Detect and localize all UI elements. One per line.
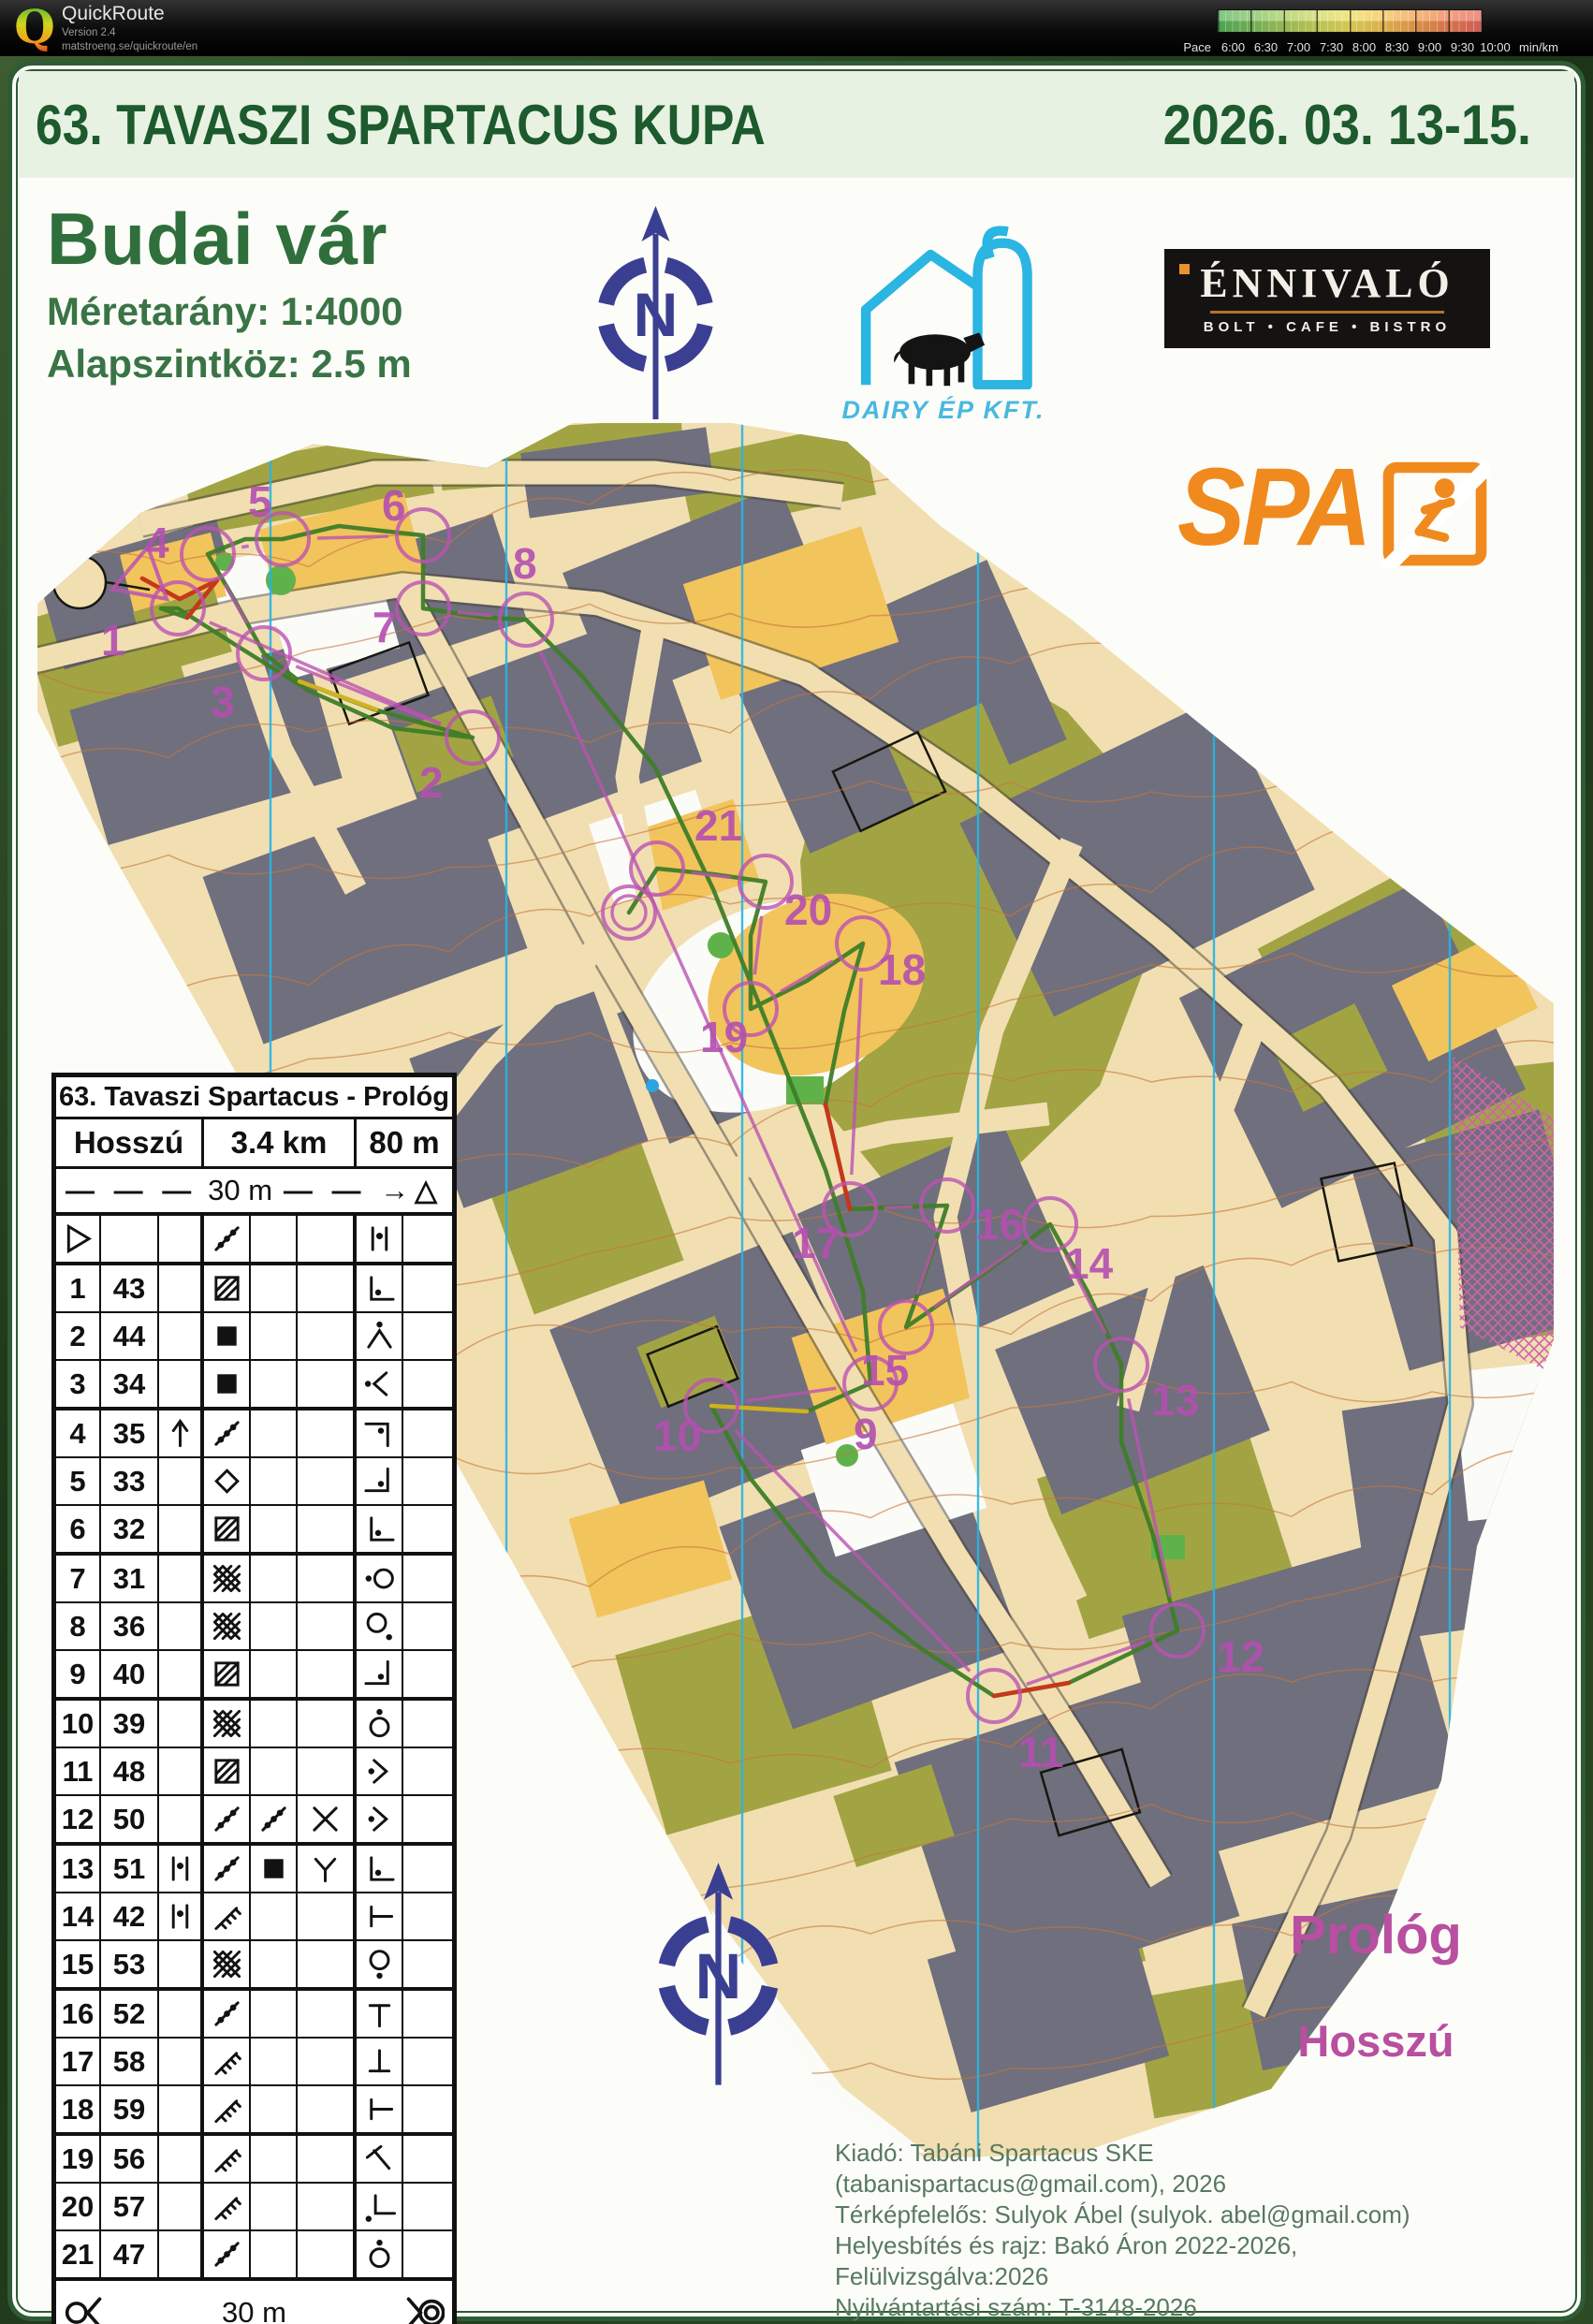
col-dimensions (298, 2039, 357, 2084)
col-appearance (251, 1991, 298, 2037)
col-code: 33 (101, 1458, 159, 1504)
col-feature (204, 1361, 251, 1407)
col-dimensions (298, 2136, 357, 2182)
app-name: QuickRoute (62, 3, 165, 25)
col-code: 48 (101, 1748, 159, 1794)
col-location (357, 1313, 403, 1359)
col-location (357, 2136, 403, 2182)
dot-circle-symbol (363, 1562, 396, 1595)
cross-symbol (309, 1803, 342, 1835)
stairway-symbol (211, 2190, 243, 2223)
pace-tick: 7:00 (1282, 40, 1315, 54)
col-which (159, 1796, 204, 1842)
col-other (403, 1941, 452, 1987)
finish-row: 30 m (56, 2281, 452, 2324)
between-symbol (164, 1852, 197, 1885)
start-route-distance: 30 m (208, 1174, 272, 1207)
col-which (159, 1701, 204, 1747)
map-info-block: Budai vár Méretarány: 1:4000 Alapszintkö… (47, 197, 412, 387)
col-dimensions (298, 1506, 357, 1552)
col-other (403, 1846, 452, 1892)
col-appearance (251, 1893, 298, 1939)
col-number: 13 (56, 1846, 101, 1892)
canopy-symbol (211, 1562, 243, 1595)
col-feature (204, 2231, 251, 2277)
paved-symbol (211, 1658, 243, 1690)
svg-text:N: N (695, 1940, 742, 2012)
quickroute-titlebar: Q QuickRoute Version 2.4 matstroeng.se/q… (0, 0, 1593, 56)
wall-symbol (211, 2238, 243, 2271)
ennivalo-rule (1210, 311, 1444, 314)
card-marked-route: — — — 30 m — — →△ (56, 1169, 452, 1216)
col-feature (204, 1506, 251, 1552)
control-row: 5 33 (56, 1458, 452, 1506)
svg-text:Q: Q (14, 4, 55, 54)
canopy-symbol (211, 1610, 243, 1643)
col-which (159, 2231, 204, 2277)
col-location (357, 1701, 403, 1747)
col-code: 36 (101, 1603, 159, 1649)
col-feature (204, 1410, 251, 1456)
col-which (159, 1265, 204, 1311)
card-course-info: Hosszú 3.4 km 80 m (56, 1119, 452, 1169)
col-code: 35 (101, 1410, 159, 1456)
finish-route-distance: 30 m (222, 2296, 286, 2324)
col-code: 52 (101, 1991, 159, 2037)
col-which (159, 1846, 204, 1892)
col-other (403, 1991, 452, 2037)
col-dimensions (298, 2086, 357, 2132)
course-banner: Prológ Hosszú (1245, 1904, 1507, 2067)
col-number: 2 (56, 1313, 101, 1359)
col-location (357, 2184, 403, 2229)
col-feature (204, 1313, 251, 1359)
control-row: 7 31 (56, 1556, 452, 1603)
col-number: 9 (56, 1651, 101, 1697)
control-row: 20 57 (56, 2184, 452, 2231)
col-appearance (251, 1556, 298, 1601)
col-other (403, 1701, 452, 1747)
map-scale: Méretarány: 1:4000 (47, 289, 412, 334)
col-dimensions (298, 1410, 357, 1456)
col-code: 34 (101, 1361, 159, 1407)
col-other (403, 1893, 452, 1939)
junction-y-symbol (309, 1852, 342, 1885)
pace-tick: 6:00 (1217, 40, 1250, 54)
col-appearance (251, 1216, 298, 1262)
app-version: Version 2.4 (62, 27, 116, 38)
between-symbol (164, 1900, 197, 1933)
control-row: 3 34 (56, 1361, 452, 1410)
col-feature (204, 1458, 251, 1504)
pace-labels: Pace6:006:307:007:308:008:309:009:3010:0… (1147, 40, 1566, 54)
col-dimensions (298, 1846, 357, 1892)
col-number: 19 (56, 2136, 101, 2182)
col-which (159, 2086, 204, 2132)
col-code: 51 (101, 1846, 159, 1892)
col-which (159, 1941, 204, 1987)
chevron-e-dot-symbol (363, 1755, 396, 1788)
col-feature (204, 1846, 251, 1892)
corner-sw-dot-symbol (363, 1852, 396, 1885)
col-appearance (251, 1846, 298, 1892)
wall-symbol (211, 1222, 243, 1255)
map-contour-interval: Alapszintköz: 2.5 m (47, 342, 412, 387)
credit-line: Kiadó: Tabáni Spartacus SKE (tabanispart… (835, 2138, 1490, 2200)
apex-n-dot-symbol (363, 1320, 396, 1352)
pace-tick: 10:00 (1479, 40, 1512, 54)
col-which (159, 2039, 204, 2084)
col-location (357, 1556, 403, 1601)
stairway-symbol (211, 2142, 243, 2175)
control-row: 9 40 (56, 1651, 452, 1701)
col-which (159, 1506, 204, 1552)
credit-line: Helyesbítés és rajz: Bakó Áron 2022-2026… (835, 2230, 1490, 2292)
col-code: 40 (101, 1651, 159, 1697)
pace-tick: 6:30 (1250, 40, 1282, 54)
pace-tick: 9:30 (1446, 40, 1479, 54)
diag-tick-symbol (363, 2142, 396, 2175)
pace-tick: 7:30 (1315, 40, 1348, 54)
col-code: 58 (101, 2039, 159, 2084)
control-row: 11 48 (56, 1748, 452, 1796)
map-title: Budai vár (47, 197, 412, 282)
between-symbol (363, 1222, 396, 1255)
course-name: Prológ (1245, 1904, 1507, 1966)
col-code: 43 (101, 1265, 159, 1311)
north-arrow-icon-bottom: N (646, 1859, 791, 2093)
pace-tick: 8:30 (1381, 40, 1413, 54)
col-which (159, 2136, 204, 2182)
col-appearance (251, 2086, 298, 2132)
col-number: 1 (56, 1265, 101, 1311)
col-dimensions (298, 1701, 357, 1747)
corner-ne-dot-symbol (363, 1417, 396, 1450)
corner-se-dot-symbol (363, 1658, 396, 1690)
wall-symbol (257, 1803, 290, 1835)
col-appearance (251, 2039, 298, 2084)
col-location (357, 2231, 403, 2277)
circle-dot-se-symbol (363, 1610, 396, 1643)
col-location (357, 1506, 403, 1552)
svg-text:N: N (634, 280, 679, 349)
dairy-logo: DAIRY ÉP KFT. (836, 221, 1051, 425)
col-appearance (251, 1603, 298, 1649)
col-number: 8 (56, 1603, 101, 1649)
col-feature (204, 1991, 251, 2037)
col-which (159, 1556, 204, 1601)
col-feature (204, 1216, 251, 1262)
control-row: 18 59 (56, 2086, 452, 2136)
col-appearance (251, 2231, 298, 2277)
col-location (357, 1603, 403, 1649)
col-dimensions (298, 1458, 357, 1504)
control-row: 8 36 (56, 1603, 452, 1651)
control-row: 13 51 (56, 1846, 452, 1893)
col-code: 56 (101, 2136, 159, 2182)
dairy-barn-icon (843, 221, 1045, 389)
wall-symbol (211, 1803, 243, 1835)
control-row: 6 32 (56, 1506, 452, 1556)
canopy-symbol (211, 1948, 243, 1981)
wall-symbol (211, 1417, 243, 1450)
ennivalo-accent-square (1179, 264, 1190, 274)
col-other (403, 1603, 452, 1649)
credit-line: Nyilvántartási szám: T-3148-2026 (835, 2292, 1490, 2323)
col-feature (204, 2086, 251, 2132)
col-other (403, 1361, 452, 1407)
col-other (403, 1651, 452, 1697)
event-banner: 63. TAVASZI SPARTACUS KUPA 2026. 03. 13-… (19, 71, 1574, 178)
col-appearance (251, 1701, 298, 1747)
col-appearance (251, 2184, 298, 2229)
control-row: 12 50 (56, 1796, 452, 1846)
circle-dot-s-symbol (363, 1948, 396, 1981)
col-feature (204, 1701, 251, 1747)
control-row: 4 35 (56, 1410, 452, 1458)
wall-symbol (211, 1852, 243, 1885)
col-feature (204, 2136, 251, 2182)
col-number: 6 (56, 1506, 101, 1552)
corner-se-dot-symbol (363, 1465, 396, 1498)
quickroute-logo-icon: Q (13, 4, 56, 59)
control-row: 14 42 (56, 1893, 452, 1941)
screenshot-root: Q QuickRoute Version 2.4 matstroeng.se/q… (0, 0, 1593, 2324)
col-other (403, 2231, 452, 2277)
paved-symbol (211, 1272, 243, 1305)
credits: Kiadó: Tabáni Spartacus SKE (tabanispart… (835, 2138, 1490, 2324)
control-row: 17 58 (56, 2039, 452, 2086)
ennivalo-name: ÉNNIVALÓ (1200, 263, 1454, 304)
col-code: 53 (101, 1941, 159, 1987)
col-other (403, 1556, 452, 1601)
col-dimensions (298, 2184, 357, 2229)
col-other (403, 2086, 452, 2132)
col-dimensions (298, 1748, 357, 1794)
col-appearance (251, 1796, 298, 1842)
col-feature (204, 2039, 251, 2084)
control-row: 2 44 (56, 1313, 452, 1361)
col-feature (204, 2184, 251, 2229)
circle-chevron-symbol (64, 2292, 105, 2324)
col-feature (204, 1265, 251, 1311)
course-category: Hosszú (1245, 2015, 1507, 2067)
col-other (403, 2184, 452, 2229)
t-w-symbol (363, 1900, 396, 1933)
col-number: 7 (56, 1556, 101, 1601)
event-date: 2026. 03. 13-15. (1163, 93, 1531, 157)
col-which (159, 1893, 204, 1939)
paved-symbol (211, 1513, 243, 1545)
stairway-symbol (211, 2093, 243, 2126)
col-which (159, 1361, 204, 1407)
canopy-symbol (211, 1707, 243, 1740)
circle-dot-n-symbol (363, 2238, 396, 2271)
control-row: 21 47 (56, 2231, 452, 2281)
col-location (357, 1748, 403, 1794)
col-number: 14 (56, 1893, 101, 1939)
chevron-finish-symbol (403, 2292, 445, 2324)
col-other (403, 1458, 452, 1504)
col-number: 20 (56, 2184, 101, 2229)
app-url: matstroeng.se/quickroute/en (62, 41, 197, 52)
col-number: 17 (56, 2039, 101, 2084)
ennivalo-subtitle: BOLT • CAFE • BISTRO (1204, 319, 1451, 335)
col-other (403, 2039, 452, 2084)
spari-logo: SPA (1177, 455, 1490, 569)
col-appearance (251, 2136, 298, 2182)
credit-line: Térképfelelős: Sulyok Ábel (sulyok. abel… (835, 2200, 1490, 2230)
col-dimensions (298, 1603, 357, 1649)
col-other (403, 1216, 452, 1262)
col-feature (204, 1651, 251, 1697)
card-length: 3.4 km (204, 1119, 357, 1166)
col-which (159, 1216, 204, 1262)
col-dimensions (298, 1313, 357, 1359)
col-other (403, 1748, 452, 1794)
pace-unit: min/km (1512, 40, 1566, 54)
col-appearance (251, 1506, 298, 1552)
col-which (159, 1313, 204, 1359)
building-symbol (257, 1852, 290, 1885)
col-which (159, 1748, 204, 1794)
pace-legend: Pace6:006:307:007:308:008:309:009:3010:0… (1147, 7, 1587, 54)
col-appearance (251, 1941, 298, 1987)
col-number: 21 (56, 2231, 101, 2277)
col-number (56, 1216, 101, 1262)
paved-symbol (211, 1755, 243, 1788)
col-location (357, 2039, 403, 2084)
col-number: 18 (56, 2086, 101, 2132)
col-other (403, 2136, 452, 2182)
col-number: 16 (56, 1991, 101, 2037)
pace-label: Pace (1147, 40, 1217, 54)
col-dimensions (298, 1893, 357, 1939)
col-dimensions (298, 1361, 357, 1407)
col-feature (204, 1893, 251, 1939)
col-location (357, 2086, 403, 2132)
col-which (159, 1991, 204, 2037)
col-feature (204, 1748, 251, 1794)
card-course: Hosszú (56, 1119, 204, 1166)
col-number: 11 (56, 1748, 101, 1794)
corner-sw-dot-symbol (363, 1272, 396, 1305)
start-symbol (62, 1222, 95, 1255)
col-appearance (251, 1265, 298, 1311)
t-w-symbol (363, 2093, 396, 2126)
diamond-symbol (211, 1465, 243, 1498)
col-appearance (251, 1410, 298, 1456)
col-appearance (251, 1458, 298, 1504)
col-other (403, 1796, 452, 1842)
col-number: 10 (56, 1701, 101, 1747)
circle-dot-n-symbol (363, 1707, 396, 1740)
ennivalo-logo: ÉNNIVALÓ BOLT • CAFE • BISTRO (1164, 249, 1490, 348)
col-feature (204, 1556, 251, 1601)
col-feature (204, 1941, 251, 1987)
card-climb: 80 m (357, 1119, 452, 1166)
col-location (357, 1265, 403, 1311)
col-number: 4 (56, 1410, 101, 1456)
col-number: 5 (56, 1458, 101, 1504)
col-location (357, 1991, 403, 2037)
col-which (159, 1410, 204, 1456)
control-row (56, 1216, 452, 1265)
col-code: 39 (101, 1701, 159, 1747)
col-dimensions (298, 1556, 357, 1601)
col-code: 42 (101, 1893, 159, 1939)
col-feature (204, 1603, 251, 1649)
col-code: 50 (101, 1796, 159, 1842)
col-appearance (251, 1361, 298, 1407)
col-code: 32 (101, 1506, 159, 1552)
t-n-symbol (363, 1997, 396, 2030)
spari-runner-icon (1380, 459, 1490, 569)
event-title: 63. TAVASZI SPARTACUS KUPA (36, 93, 766, 157)
col-other (403, 1410, 452, 1456)
col-dimensions (298, 1991, 357, 2037)
wall-symbol (211, 1997, 243, 2030)
pace-tick: 8:00 (1348, 40, 1381, 54)
chevron-e-dot-symbol (363, 1803, 396, 1835)
north-arrow-icon: N (588, 202, 723, 427)
control-description-sheet: 63. Tavaszi Spartacus - Prológ Hosszú 3.… (51, 1073, 457, 2324)
dairy-logo-text: DAIRY ÉP KFT. (836, 396, 1051, 425)
col-code: 44 (101, 1313, 159, 1359)
arrow-n-symbol (164, 1417, 197, 1450)
col-location (357, 1893, 403, 1939)
col-which (159, 1651, 204, 1697)
col-number: 12 (56, 1796, 101, 1842)
control-row: 16 52 (56, 1991, 452, 2039)
col-other (403, 1313, 452, 1359)
col-which (159, 1458, 204, 1504)
col-location (357, 1458, 403, 1504)
col-number: 15 (56, 1941, 101, 1987)
building-symbol (211, 1367, 243, 1400)
col-other (403, 1265, 452, 1311)
t-s-symbol (363, 2045, 396, 2078)
col-code (101, 1216, 159, 1262)
control-row: 10 39 (56, 1701, 452, 1748)
stairway-symbol (211, 2045, 243, 2078)
control-row: 15 53 (56, 1941, 452, 1991)
control-row: 1 43 (56, 1265, 452, 1313)
col-other (403, 1506, 452, 1552)
col-location (357, 1846, 403, 1892)
col-location (357, 1361, 403, 1407)
col-appearance (251, 1651, 298, 1697)
col-dimensions (298, 1941, 357, 1987)
pace-tick: 9:00 (1413, 40, 1446, 54)
corner-sw-outdot-symbol (363, 2190, 396, 2223)
col-appearance (251, 1313, 298, 1359)
spari-logo-text: SPA (1177, 455, 1368, 560)
building-symbol (211, 1320, 243, 1352)
col-code: 57 (101, 2184, 159, 2229)
stairway-symbol (211, 1900, 243, 1933)
col-location (357, 1941, 403, 1987)
pace-gradient-bar (1217, 9, 1483, 33)
col-dimensions (298, 2231, 357, 2277)
col-feature (204, 1796, 251, 1842)
col-dimensions (298, 1216, 357, 1262)
chevron-w-dot-symbol (363, 1367, 396, 1400)
col-dimensions (298, 1651, 357, 1697)
control-row: 19 56 (56, 2136, 452, 2184)
col-code: 47 (101, 2231, 159, 2277)
col-location (357, 1651, 403, 1697)
